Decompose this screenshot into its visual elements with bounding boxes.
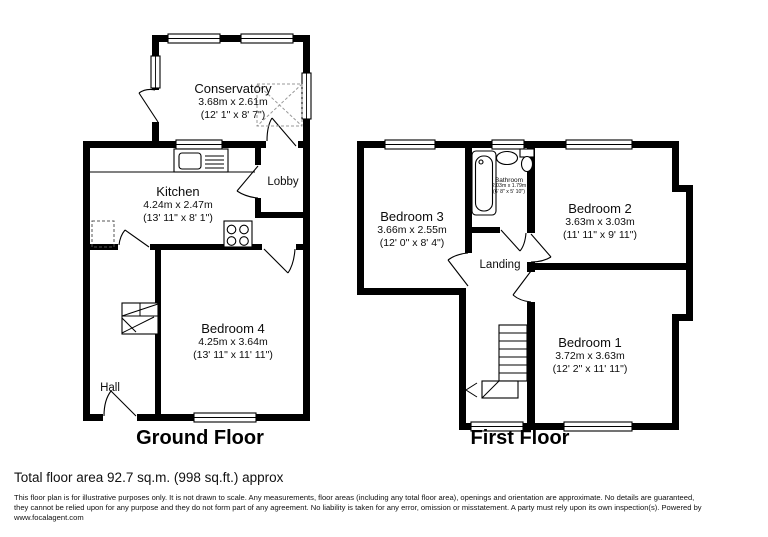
room-label-kitchen: Kitchen 4.24m x 2.47m (13' 11" x 8' 1")	[143, 184, 213, 224]
window	[151, 56, 160, 88]
toilet-icon	[520, 149, 534, 172]
disclaimer-line-2: they cannot be relied upon for any purpo…	[14, 503, 762, 513]
room-label-bedroom1: Bedroom 1 3.72m x 3.63m (12' 2" x 11' 11…	[553, 335, 628, 375]
first-floor-title: First Floor	[471, 427, 570, 450]
room-label-bathroom: Bathroom 2.03m x 1.79m (6' 8" x 5' 10")	[492, 177, 526, 196]
kitchen-sink-icon	[90, 149, 255, 172]
hob-icon	[224, 221, 252, 247]
window	[385, 140, 435, 149]
disclaimer-text: This floor plan is for illustrative purp…	[14, 493, 762, 523]
room-label-bedroom4: Bedroom 4 4.25m x 3.64m (13' 11" x 11' 1…	[193, 321, 273, 361]
stairs-icon	[122, 303, 158, 334]
disclaimer-line-3: www.focalagent.com	[14, 513, 762, 523]
room-label-landing: Landing	[480, 259, 521, 273]
room-label-hall: Hall	[100, 382, 120, 396]
window	[194, 413, 256, 422]
window	[241, 34, 293, 43]
ground-doors	[104, 89, 296, 416]
window	[492, 140, 524, 149]
wash-basin-icon	[497, 152, 518, 165]
room-label-lobby: Lobby	[267, 176, 298, 190]
room-label-conservatory: Conservatory 3.68m x 2.61m (12' 1" x 8' …	[194, 81, 271, 121]
stairs-icon	[466, 325, 527, 398]
floorplan-page: Conservatory 3.68m x 2.61m (12' 1" x 8' …	[0, 0, 768, 537]
window	[564, 422, 632, 431]
room-label-bedroom2: Bedroom 2 3.63m x 3.03m (11' 11" x 9' 11…	[563, 201, 637, 241]
window	[566, 140, 632, 149]
door-swing	[501, 230, 526, 251]
window	[168, 34, 220, 43]
window	[176, 140, 222, 149]
total-floor-area: Total floor area 92.7 sq.m. (998 sq.ft.)…	[14, 470, 283, 485]
window	[302, 73, 311, 119]
door-swing	[237, 166, 258, 198]
ground-floor-title: Ground Floor	[136, 427, 264, 450]
room-label-bedroom3: Bedroom 3 3.66m x 2.55m (12' 0" x 8' 4")	[377, 209, 446, 249]
door-swing	[264, 249, 295, 273]
disclaimer-line-1: This floor plan is for illustrative purp…	[14, 493, 762, 503]
appliance-space-icon	[92, 221, 114, 247]
